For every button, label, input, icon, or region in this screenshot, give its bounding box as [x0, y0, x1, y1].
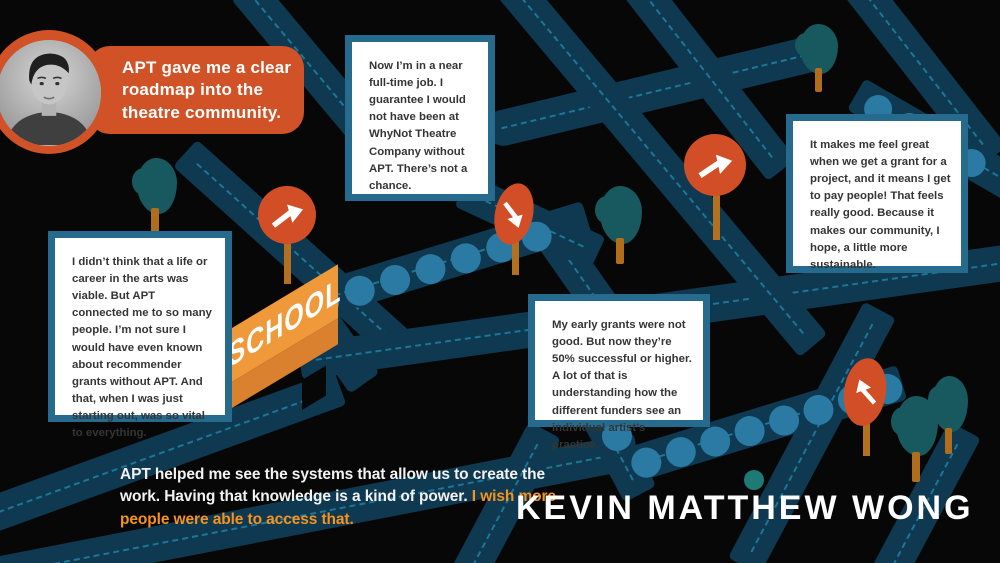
quote-bubble: APT gave me a clear roadmap into the the…	[88, 46, 304, 134]
quote-box: I didn’t think that a life or career in …	[48, 231, 232, 422]
quote-box-text: Now I’m in a near full-time job. I guara…	[352, 42, 488, 205]
person-name: KEVIN MATTHEW WONG	[516, 489, 974, 528]
quote-box-text: It makes me feel great when we get a gra…	[793, 121, 961, 284]
path-dot	[744, 470, 764, 490]
profile-photo	[0, 40, 101, 146]
infographic-canvas: SCHOOL APT gave me a clear roadmap into …	[0, 0, 1000, 563]
quote-box: Now I’m in a near full-time job. I guara…	[345, 35, 495, 201]
footer-quote: APT helped me see the systems that allow…	[120, 464, 558, 531]
quote-bubble-text: APT gave me a clear roadmap into the the…	[88, 46, 304, 124]
quote-box: It makes me feel great when we get a gra…	[786, 114, 968, 273]
quote-box: My early grants were not good. But now t…	[528, 294, 710, 427]
quote-box-text: My early grants were not good. But now t…	[535, 301, 703, 464]
quote-box-text: I didn’t think that a life or career in …	[55, 238, 225, 452]
school-building: SCHOOL	[228, 262, 368, 422]
